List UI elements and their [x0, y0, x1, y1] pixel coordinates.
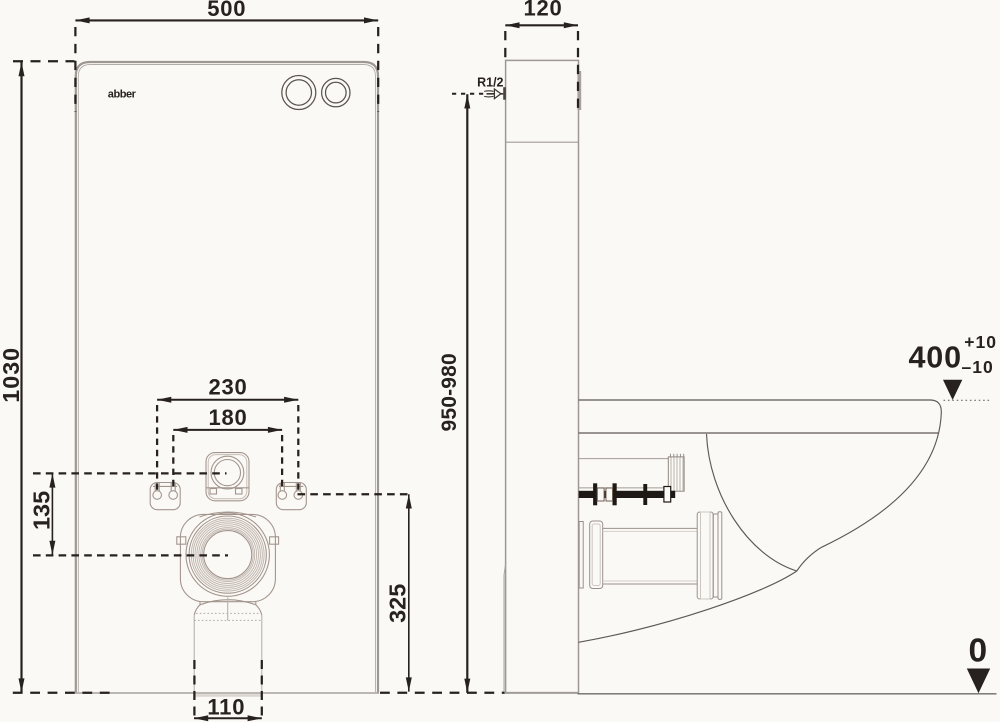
- svg-text:1030: 1030: [0, 347, 24, 403]
- svg-text:400: 400: [909, 341, 962, 375]
- svg-text:180: 180: [208, 405, 247, 430]
- svg-text:950-980: 950-980: [438, 353, 461, 431]
- svg-text:+10: +10: [964, 332, 997, 352]
- svg-text:135: 135: [28, 491, 54, 530]
- svg-text:0: 0: [968, 633, 987, 670]
- svg-text:325: 325: [384, 584, 410, 623]
- svg-text:abber: abber: [108, 88, 137, 100]
- svg-text:500: 500: [207, 0, 246, 21]
- svg-text:R1/2: R1/2: [477, 76, 503, 90]
- svg-text:–10: –10: [962, 357, 994, 377]
- svg-text:120: 120: [523, 0, 562, 21]
- svg-text:110: 110: [207, 694, 245, 719]
- svg-text:230: 230: [208, 374, 247, 399]
